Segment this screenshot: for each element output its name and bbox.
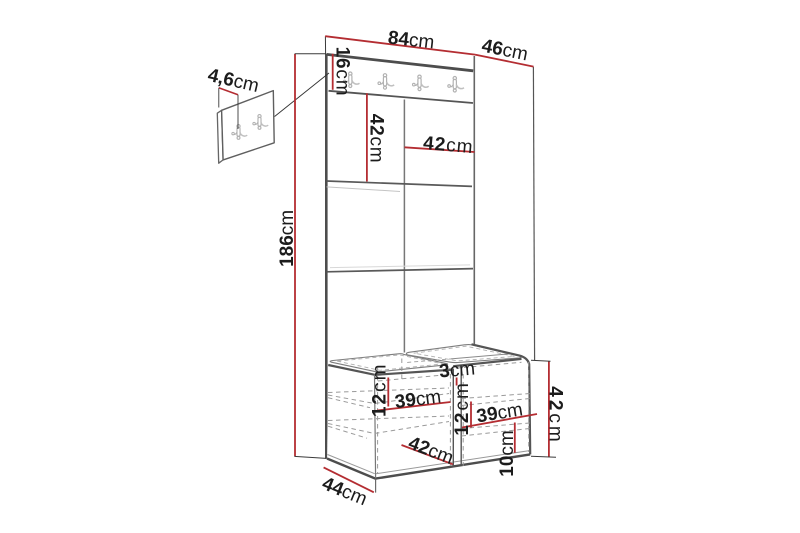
svg-text:42cm: 42cm <box>422 133 474 158</box>
svg-text:42cm: 42cm <box>545 386 566 444</box>
svg-text:16cm: 16cm <box>332 47 353 97</box>
svg-text:10cm: 10cm <box>497 430 518 476</box>
svg-text:186cm: 186cm <box>277 210 298 267</box>
svg-text:12cm: 12cm <box>452 381 473 435</box>
svg-text:42cm: 42cm <box>365 114 386 164</box>
svg-text:3cm: 3cm <box>438 358 476 382</box>
svg-text:12cm: 12cm <box>369 363 390 417</box>
